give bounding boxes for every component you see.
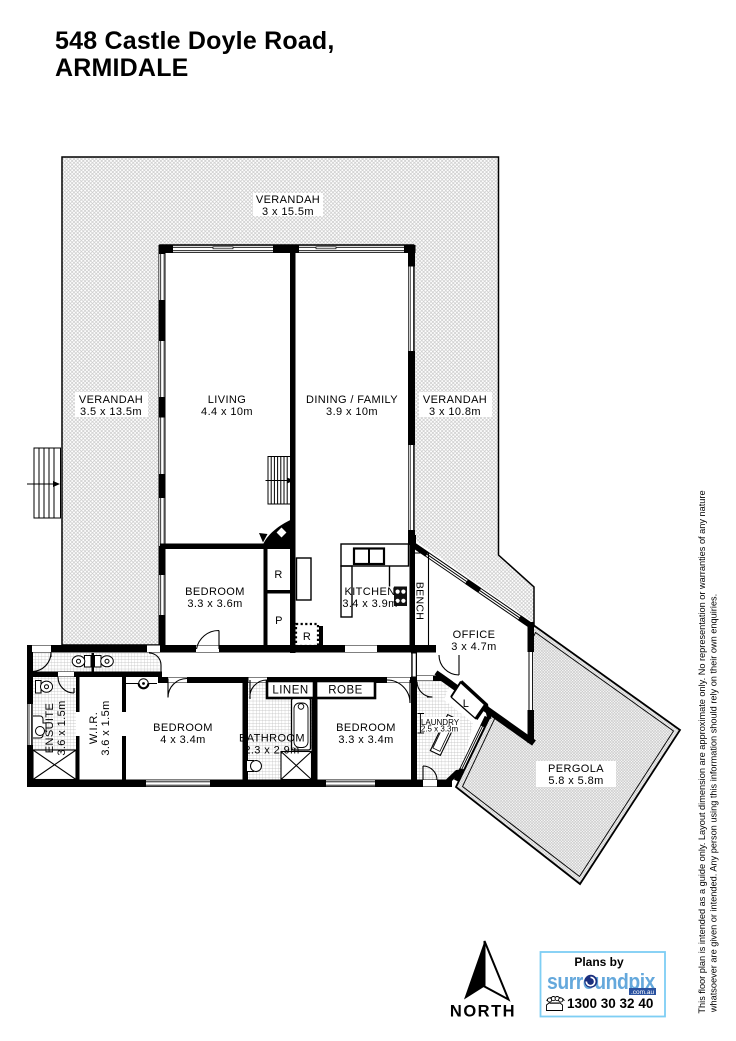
svg-text:3.5 x 13.5m: 3.5 x 13.5m bbox=[80, 406, 142, 418]
svg-text:VERANDAH: VERANDAH bbox=[423, 394, 487, 406]
svg-text:DINING / FAMILY: DINING / FAMILY bbox=[306, 394, 398, 406]
svg-text:R: R bbox=[274, 569, 282, 581]
svg-text:This floor plan is intended as: This floor plan is intended as a guide o… bbox=[697, 490, 707, 1013]
svg-text:2.3 x 2.9m: 2.3 x 2.9m bbox=[244, 745, 299, 757]
svg-text:3.3 x 3.6m: 3.3 x 3.6m bbox=[187, 598, 242, 610]
svg-text:ARMIDALE: ARMIDALE bbox=[55, 54, 189, 82]
svg-text:4 x 3.4m: 4 x 3.4m bbox=[160, 734, 205, 746]
svg-text:3.6 x 1.5m: 3.6 x 1.5m bbox=[56, 700, 68, 755]
svg-text:.com.au: .com.au bbox=[631, 989, 655, 996]
svg-text:KITCHEN: KITCHEN bbox=[344, 586, 395, 598]
svg-text:5.8 x 5.8m: 5.8 x 5.8m bbox=[548, 775, 603, 787]
svg-text:VERANDAH: VERANDAH bbox=[256, 194, 320, 206]
svg-text:3 x 4.7m: 3 x 4.7m bbox=[451, 641, 496, 653]
svg-text:VERANDAH: VERANDAH bbox=[79, 394, 143, 406]
svg-text:3 x 15.5m: 3 x 15.5m bbox=[262, 206, 314, 218]
svg-text:BATHROOM: BATHROOM bbox=[239, 733, 305, 745]
svg-text:P: P bbox=[275, 615, 283, 627]
svg-text:whatsoever are given or intend: whatsoever are given or intended. Any pe… bbox=[709, 594, 719, 1013]
svg-text:3.4 x 3.9m: 3.4 x 3.9m bbox=[342, 598, 397, 610]
svg-text:3.3 x 3.4m: 3.3 x 3.4m bbox=[338, 734, 393, 746]
svg-text:548 Castle Doyle Road,: 548 Castle Doyle Road, bbox=[55, 27, 335, 55]
svg-text:3.6 x 1.5m: 3.6 x 1.5m bbox=[100, 700, 112, 755]
svg-text:Plans by: Plans by bbox=[574, 955, 624, 969]
svg-text:2.5 x 3.3m: 2.5 x 3.3m bbox=[421, 725, 459, 734]
svg-text:W.I.R.: W.I.R. bbox=[88, 712, 100, 744]
svg-text:R: R bbox=[303, 631, 311, 643]
svg-text:ENSUITE: ENSUITE bbox=[44, 703, 56, 753]
svg-text:LINEN: LINEN bbox=[272, 685, 308, 697]
svg-text:BENCH: BENCH bbox=[414, 582, 426, 620]
svg-text:NORTH: NORTH bbox=[450, 1003, 516, 1021]
svg-text:BEDROOM: BEDROOM bbox=[153, 722, 213, 734]
svg-text:BEDROOM: BEDROOM bbox=[185, 586, 245, 598]
svg-text:BEDROOM: BEDROOM bbox=[336, 722, 396, 734]
svg-text:3.9 x 10m: 3.9 x 10m bbox=[326, 406, 378, 418]
svg-text:PERGOLA: PERGOLA bbox=[548, 763, 604, 775]
svg-text:L: L bbox=[463, 698, 470, 710]
svg-text:3 x 10.8m: 3 x 10.8m bbox=[429, 406, 481, 418]
svg-text:OFFICE: OFFICE bbox=[453, 629, 496, 641]
svg-text:4.4 x 10m: 4.4 x 10m bbox=[201, 406, 253, 418]
svg-text:LIVING: LIVING bbox=[208, 394, 246, 406]
svg-text:ROBE: ROBE bbox=[328, 685, 363, 697]
svg-text:1300 30 32 40: 1300 30 32 40 bbox=[567, 996, 653, 1011]
